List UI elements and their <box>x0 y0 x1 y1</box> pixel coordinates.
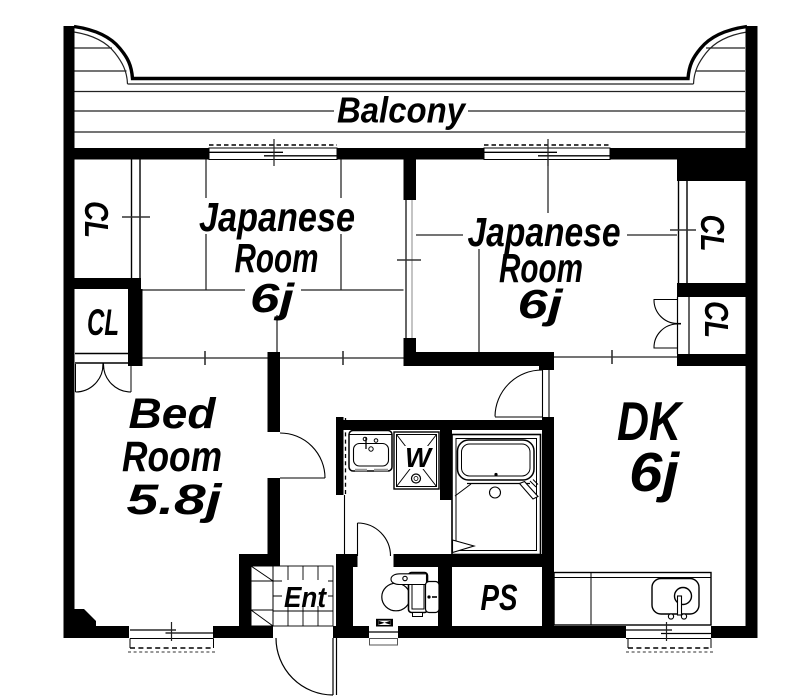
svg-text:CL: CL <box>698 301 735 338</box>
svg-text:W: W <box>405 442 433 473</box>
svg-text:Japanese: Japanese <box>199 194 355 240</box>
svg-text:Balcony: Balcony <box>337 90 467 131</box>
svg-text:PS: PS <box>481 577 518 618</box>
svg-text:CL: CL <box>694 215 731 252</box>
svg-text:CL: CL <box>87 302 119 343</box>
svg-text:6j: 6j <box>250 275 296 321</box>
svg-text:6j: 6j <box>629 441 681 503</box>
svg-text:5.8j: 5.8j <box>127 476 223 524</box>
svg-text:6j: 6j <box>518 281 565 327</box>
svg-text:CL: CL <box>78 201 115 238</box>
svg-text:Ent: Ent <box>284 582 327 614</box>
svg-text:Bed: Bed <box>129 390 217 438</box>
svg-text:Room: Room <box>122 433 222 481</box>
